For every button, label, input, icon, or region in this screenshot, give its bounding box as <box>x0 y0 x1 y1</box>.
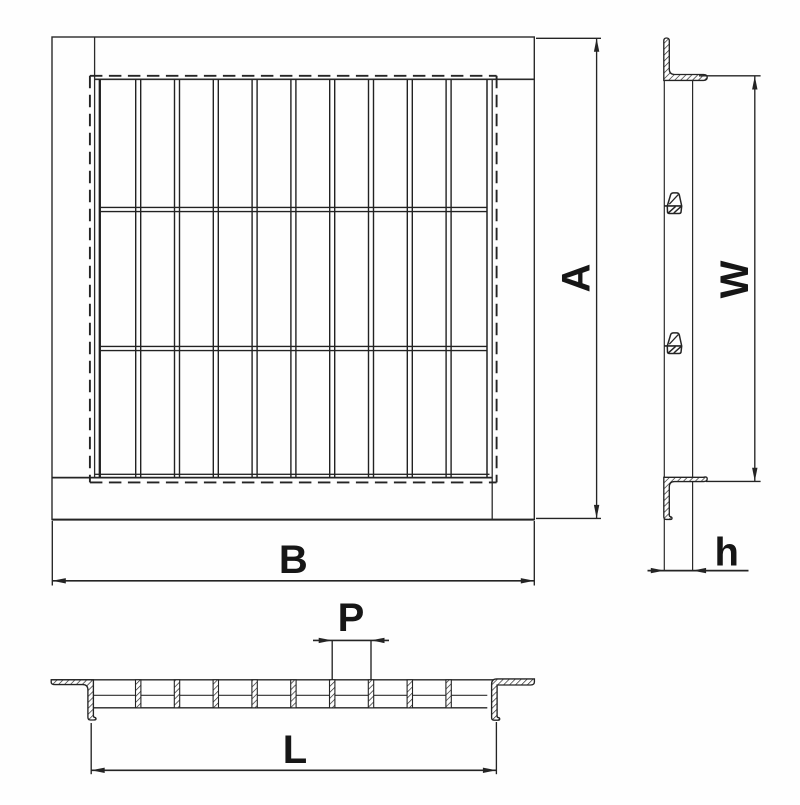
svg-text:P: P <box>338 596 365 640</box>
svg-text:L: L <box>283 728 307 772</box>
svg-text:W: W <box>713 260 757 298</box>
svg-text:h: h <box>714 531 738 575</box>
svg-text:A: A <box>555 264 599 293</box>
svg-text:B: B <box>279 538 308 582</box>
